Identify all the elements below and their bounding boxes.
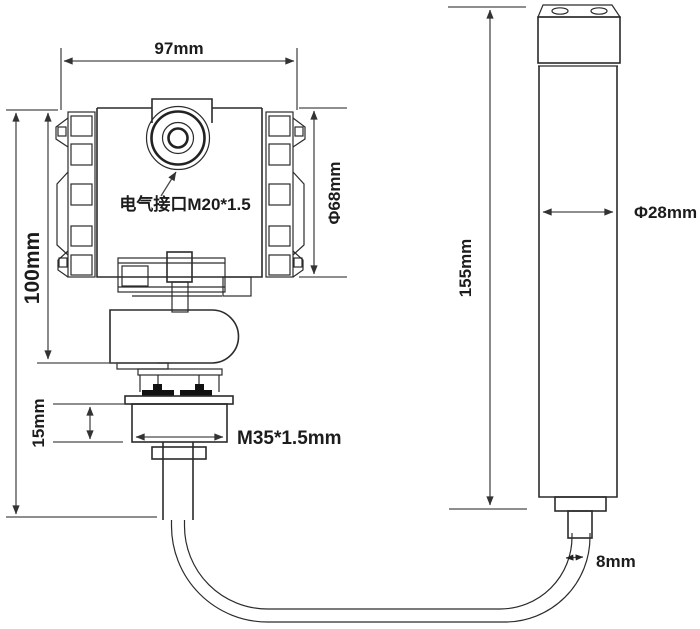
drawing-canvas: 97mm 100mm Φ68mm 电气接口M20*1.5 15mm M35*1.…: [0, 0, 700, 629]
vent-hole-right: [591, 8, 607, 14]
probe-collar: [555, 497, 606, 511]
dim-housing-diameter: Φ68mm: [299, 108, 347, 277]
stud-section: [140, 375, 219, 396]
label-top-width: 97mm: [154, 39, 203, 58]
callout-electrical-port: 电气接口M20*1.5: [119, 172, 250, 214]
probe: [538, 5, 620, 538]
label-probe-diameter: Φ28mm: [634, 203, 697, 222]
thread-nut: [132, 404, 227, 442]
terminal-block: [118, 252, 251, 312]
dim-probe-height: 155mm: [448, 7, 527, 509]
right-rib: [266, 112, 305, 277]
dim-nut-height: 15mm: [29, 398, 125, 447]
dim-cable-diameter: 8mm: [566, 552, 636, 571]
cable-tube: [163, 442, 193, 520]
label-nut-height: 15mm: [29, 398, 48, 447]
dim-housing-height: 100mm: [21, 113, 157, 363]
label-housing-diameter: Φ68mm: [325, 161, 344, 224]
label-cable-diameter: 8mm: [596, 552, 636, 571]
dim-probe-diameter: Φ28mm: [543, 203, 697, 222]
transmitter-housing: [56, 99, 305, 520]
vent-hole-left: [552, 8, 568, 14]
dimension-drawing: 97mm 100mm Φ68mm 电气接口M20*1.5 15mm M35*1.…: [0, 0, 700, 629]
lower-collar: [152, 447, 206, 459]
label-housing-height: 100mm: [21, 232, 44, 304]
probe-cap: [538, 17, 620, 63]
sensor-capsule: [110, 310, 239, 375]
probe-cap-top: [538, 5, 620, 17]
probe-body: [539, 66, 617, 497]
label-electrical-port: 电气接口M20*1.5: [119, 194, 250, 214]
electrical-entry-display: [147, 107, 210, 170]
left-rib: [56, 112, 95, 277]
dim-overall-height: [6, 113, 157, 517]
label-probe-height: 155mm: [456, 239, 475, 298]
label-thread: M35*1.5mm: [237, 428, 342, 449]
dim-thread: M35*1.5mm: [136, 428, 342, 449]
connection-cable: [172, 520, 591, 622]
mounting-flange: [125, 396, 233, 404]
